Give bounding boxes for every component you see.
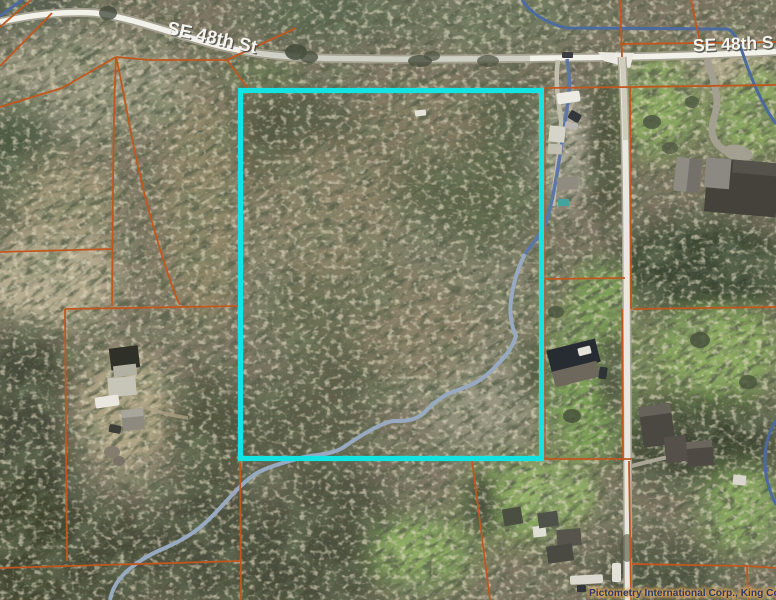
- svg-text:SE 48th S: SE 48th S: [692, 32, 774, 56]
- svg-text:Pictometry International Corp.: Pictometry International Corp., King Co: [589, 588, 776, 599]
